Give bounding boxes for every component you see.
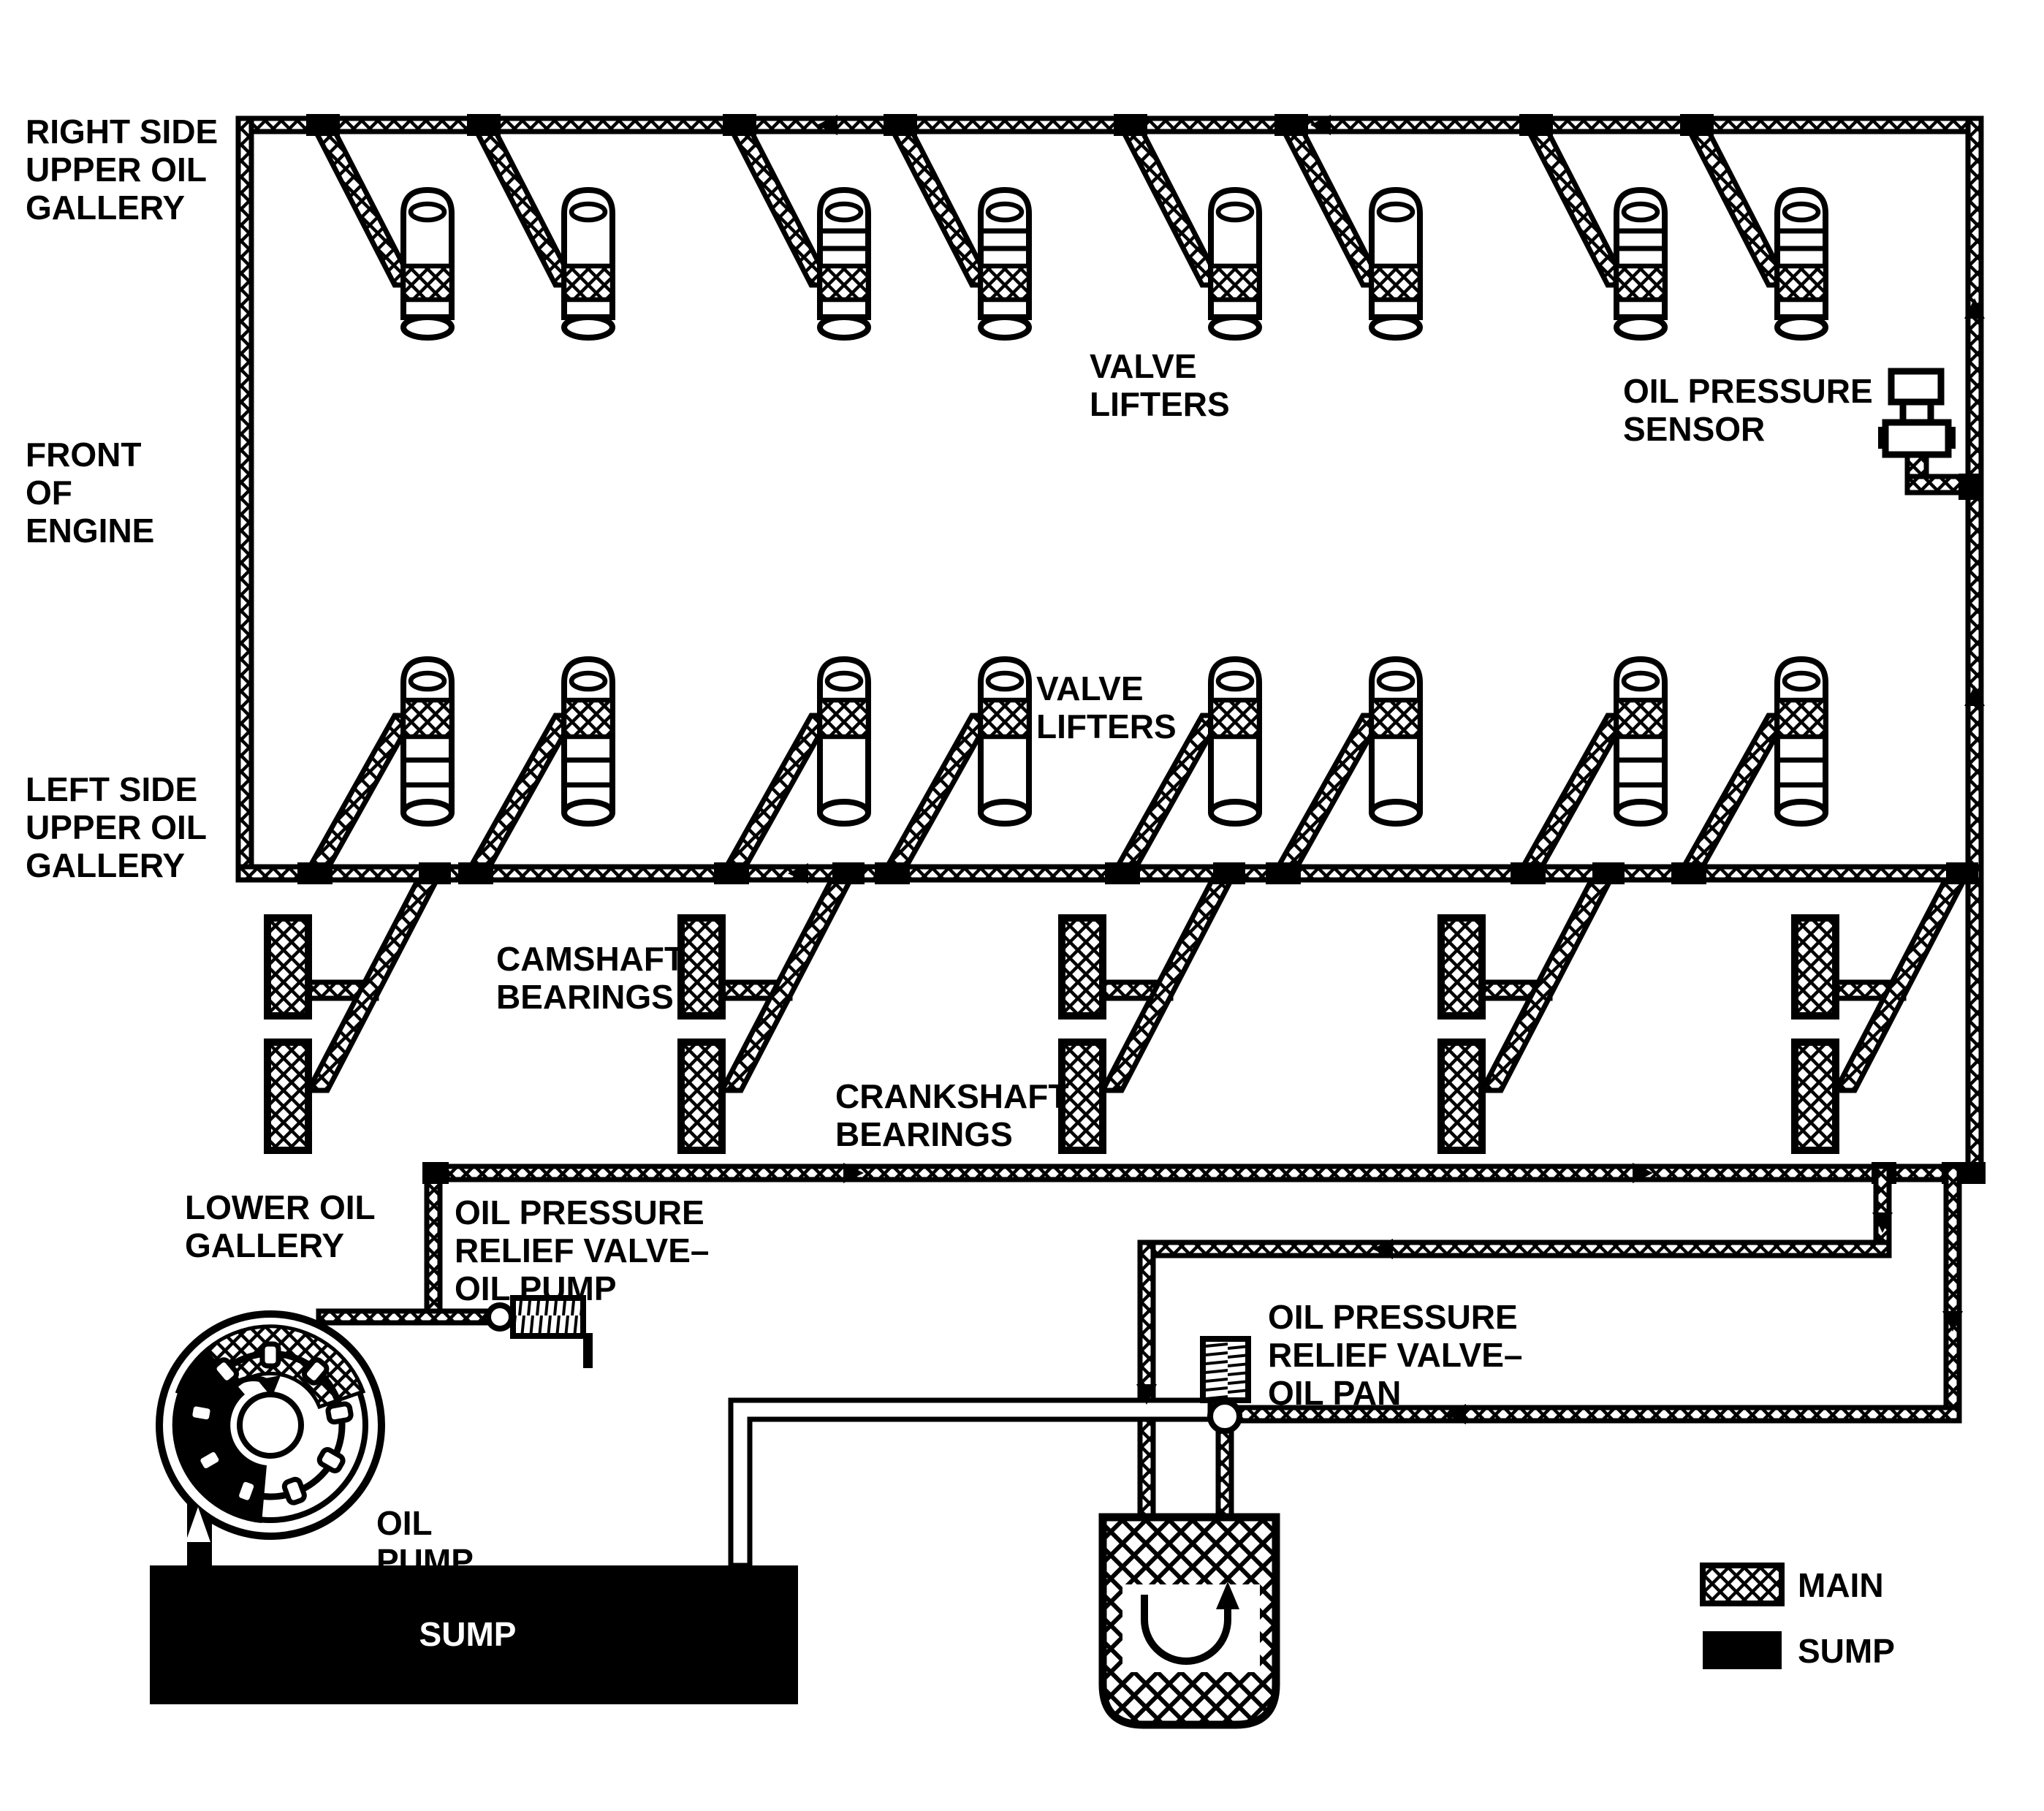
pump-outlet-pipe xyxy=(319,1311,487,1323)
svg-text:RELIEF VALVE–: RELIEF VALVE– xyxy=(455,1231,709,1269)
valve-lifter xyxy=(403,659,452,824)
label-camshaft-bearings: CAMSHAFT BEARINGS xyxy=(496,940,685,1016)
valve-lifter xyxy=(1372,659,1420,824)
relief-valve-ball-icon xyxy=(1210,1402,1239,1431)
branch-pipe xyxy=(1946,1166,1959,1421)
valve-lifter xyxy=(1777,190,1825,338)
lower-oil-gallery-pipe xyxy=(427,1166,1981,1180)
legend-label-sump: SUMP xyxy=(1798,1632,1895,1670)
svg-text:VALVE: VALVE xyxy=(1090,347,1197,385)
valve-lifter xyxy=(981,659,1029,824)
svg-text:UPPER OIL: UPPER OIL xyxy=(26,808,207,846)
pipe-joint xyxy=(1958,474,1983,500)
spring-seat-bracket xyxy=(583,1333,593,1368)
valve-discharge-pipe xyxy=(1218,1430,1231,1520)
svg-text:FRONT: FRONT xyxy=(26,436,141,474)
crankshaft-bearing xyxy=(267,1042,308,1150)
legend-label-main: MAIN xyxy=(1798,1566,1884,1604)
svg-text:BEARINGS: BEARINGS xyxy=(835,1115,1013,1153)
valve-lifter xyxy=(564,190,612,338)
svg-text:VALVE: VALVE xyxy=(1036,669,1144,707)
sump-label: SUMP xyxy=(419,1615,517,1653)
valve-lifter xyxy=(1211,659,1259,824)
svg-text:LEFT SIDE: LEFT SIDE xyxy=(26,770,197,808)
rear-main-riser-pipe xyxy=(1968,118,1981,1180)
camshaft-bearing xyxy=(681,918,722,1016)
branch-pipe xyxy=(1140,1242,1889,1256)
svg-text:LIFTERS: LIFTERS xyxy=(1090,385,1230,423)
svg-text:SENSOR: SENSOR xyxy=(1623,410,1765,448)
svg-text:OIL PRESSURE: OIL PRESSURE xyxy=(1268,1298,1518,1336)
oil-pickup-strainer xyxy=(1103,1517,1276,1725)
svg-text:OF: OF xyxy=(26,474,72,512)
svg-text:GALLERY: GALLERY xyxy=(185,1226,344,1264)
svg-text:RELIEF VALVE–: RELIEF VALVE– xyxy=(1268,1336,1522,1374)
crankshaft-bearing xyxy=(1441,1042,1482,1150)
front-gallery-pipe xyxy=(238,118,251,877)
sensor-body xyxy=(1885,422,1948,455)
valve-lifter xyxy=(403,190,452,338)
camshaft-bearing xyxy=(267,918,308,1016)
svg-text:RIGHT SIDE: RIGHT SIDE xyxy=(26,113,218,151)
valve-lifter xyxy=(981,190,1029,338)
svg-text:ENGINE: ENGINE xyxy=(26,512,154,550)
sensor-connector-icon xyxy=(1891,371,1941,402)
crankshaft-bearing xyxy=(1795,1042,1836,1150)
camshaft-bearing xyxy=(1441,918,1482,1016)
valve-lifter xyxy=(820,659,868,824)
valve-lifter xyxy=(1616,190,1665,338)
label-left-upper-gallery: LEFT SIDE UPPER OIL GALLERY xyxy=(26,770,207,884)
svg-text:OIL PUMP: OIL PUMP xyxy=(455,1269,617,1307)
camshaft-bearing xyxy=(1795,918,1836,1016)
svg-text:CRANKSHAFT: CRANKSHAFT xyxy=(835,1077,1068,1115)
svg-text:OIL PRESSURE: OIL PRESSURE xyxy=(455,1193,704,1231)
svg-text:UPPER OIL: UPPER OIL xyxy=(26,151,207,189)
relief-valve-ball-icon xyxy=(488,1305,512,1329)
relief-valve-spring-icon xyxy=(1203,1339,1248,1400)
pump-riser-pipe xyxy=(427,1166,440,1323)
svg-text:LOWER OIL: LOWER OIL xyxy=(185,1188,376,1226)
valve-lifter xyxy=(1616,659,1665,824)
svg-text:BEARINGS: BEARINGS xyxy=(496,978,674,1016)
svg-text:LIFTERS: LIFTERS xyxy=(1036,707,1177,745)
svg-text:GALLERY: GALLERY xyxy=(26,846,185,884)
svg-text:OIL: OIL xyxy=(376,1504,433,1542)
branch-pipe xyxy=(1140,1242,1153,1520)
legend-swatch-main xyxy=(1703,1565,1782,1603)
svg-text:GALLERY: GALLERY xyxy=(26,189,185,227)
diagram-canvas: SUMP xyxy=(0,0,2044,1811)
legend-swatch-sump xyxy=(1703,1631,1782,1669)
valve-lifter xyxy=(564,659,612,824)
svg-text:OIL PAN: OIL PAN xyxy=(1268,1374,1401,1412)
camshaft-bearing xyxy=(1062,918,1103,1016)
valve-lifter xyxy=(1211,190,1259,338)
crankshaft-bearing xyxy=(681,1042,722,1150)
valve-lifter xyxy=(1372,190,1420,338)
svg-text:CAMSHAFT: CAMSHAFT xyxy=(496,940,685,978)
valve-lifter xyxy=(820,190,868,338)
svg-text:OIL PRESSURE: OIL PRESSURE xyxy=(1623,372,1873,410)
valve-lifter xyxy=(1777,659,1825,824)
oil-system-diagram: SUMP xyxy=(0,0,2044,1811)
svg-text:PUMP: PUMP xyxy=(376,1542,474,1580)
